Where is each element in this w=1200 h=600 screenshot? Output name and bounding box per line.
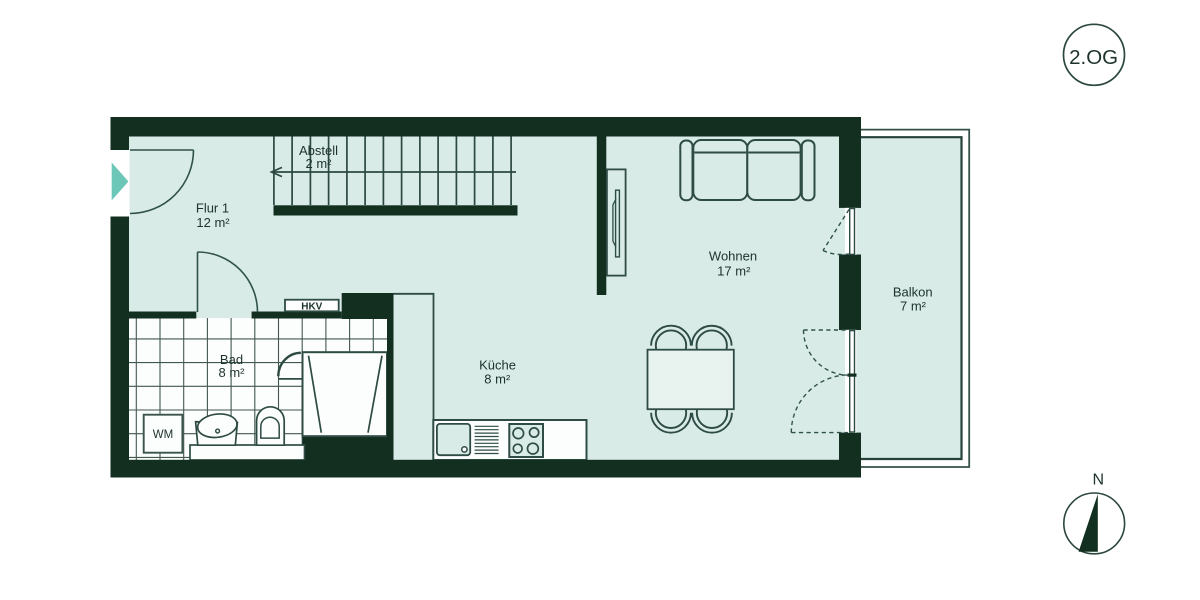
svg-text:Flur 1: Flur 1 [196,201,229,216]
svg-text:17 m²: 17 m² [717,263,751,278]
svg-text:8 m²: 8 m² [219,365,246,380]
svg-text:Wohnen: Wohnen [709,249,757,264]
svg-text:HKV: HKV [301,301,322,312]
svg-text:8 m²: 8 m² [484,371,511,386]
svg-text:7 m²: 7 m² [900,299,927,314]
svg-text:N: N [1093,472,1105,489]
svg-text:2 m²: 2 m² [306,156,333,171]
svg-text:2.OG: 2.OG [1069,46,1118,69]
svg-text:WM: WM [153,429,173,441]
svg-text:12 m²: 12 m² [196,215,230,230]
svg-text:Balkon: Balkon [893,285,933,300]
svg-text:Küche: Küche [479,358,516,373]
